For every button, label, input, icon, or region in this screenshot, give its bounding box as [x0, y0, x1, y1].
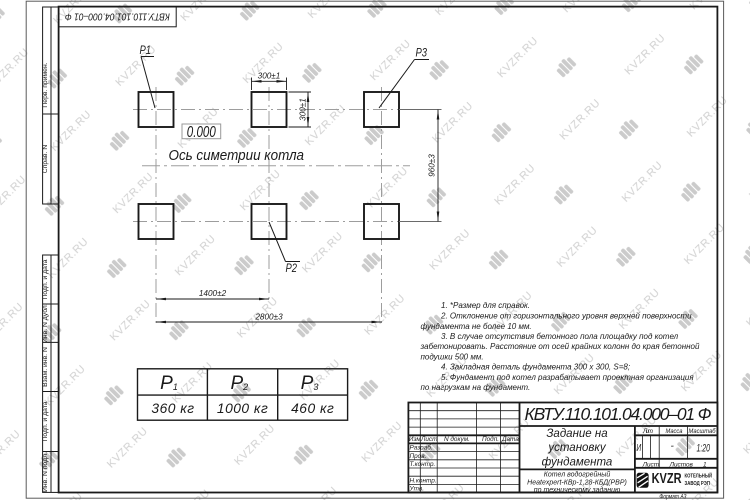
svg-text:Взам. инв. N: Взам. инв. N — [42, 347, 49, 387]
svg-text:Н.контр.: Н.контр. — [410, 477, 437, 484]
svg-text:Р3: Р3 — [416, 46, 428, 60]
svg-text:460 кг: 460 кг — [291, 401, 334, 416]
svg-text:Инв. N подл.: Инв. N подл. — [42, 452, 49, 492]
svg-text:1:20: 1:20 — [697, 442, 711, 454]
svg-text:Р1: Р1 — [140, 43, 152, 57]
svg-text:Утв.: Утв. — [409, 486, 425, 493]
svg-text:4. Закладная деталь фундамент: 4. Закладная деталь фундамента 300 x 300… — [441, 363, 630, 372]
svg-text:Подп. и дата: Подп. и дата — [42, 401, 49, 441]
svg-text:Heatexpert-КВр-1,28-КБД(РВР): Heatexpert-КВр-1,28-КБД(РВР) — [527, 480, 627, 487]
svg-text:Масса: Масса — [666, 428, 683, 435]
svg-text:Справ. N: Справ. N — [42, 145, 49, 174]
svg-text:Лист: Лист — [642, 462, 660, 469]
svg-text:Масштаб: Масштаб — [689, 427, 716, 435]
svg-text:0.000: 0.000 — [187, 124, 216, 141]
svg-text:1000 кг: 1000 кг — [217, 401, 268, 416]
svg-text:КВТУ.110.101.04.000–01 Ф: КВТУ.110.101.04.000–01 Ф — [525, 404, 712, 424]
svg-text:ЗАВОД РЭП: ЗАВОД РЭП — [685, 481, 711, 487]
svg-text:Р2: Р2 — [286, 261, 298, 275]
svg-text:2. Отклонение от горизонтальн: 2. Отклонение от горизонтального уровня … — [440, 312, 692, 321]
svg-text:установку: установку — [547, 442, 607, 454]
svg-text:300±1: 300±1 — [298, 98, 307, 121]
svg-text:KVZR: KVZR — [652, 471, 682, 487]
svg-text:подушки 500 мм.: подушки 500 мм. — [421, 352, 484, 361]
svg-text:Подп.: Подп. — [482, 435, 499, 443]
svg-text:960±3: 960±3 — [428, 154, 437, 177]
svg-text:КВТУ.110.101.04.000–01 Ф: КВТУ.110.101.04.000–01 Ф — [65, 11, 170, 23]
svg-text:по техническому заданию: по техническому заданию — [534, 486, 621, 494]
svg-text:3. В случае отсутствия бетонн: 3. В случае отсутствия бетонного пола пл… — [441, 332, 679, 341]
svg-text:N докум.: N докум. — [444, 435, 470, 443]
svg-text:Перв. примен.: Перв. примен. — [42, 62, 49, 107]
svg-text:забетонировать. Расстояние от: забетонировать. Расстояние от осей крайн… — [420, 342, 700, 351]
svg-text:Пров.: Пров. — [410, 453, 427, 460]
svg-text:Инв. N дубл.: Инв. N дубл. — [41, 303, 49, 343]
svg-text:фундамента не более 10 мм.: фундамента не более 10 мм. — [421, 322, 532, 331]
svg-text:Ось симетрии котла: Ось симетрии котла — [169, 148, 305, 164]
svg-text:Т.контр.: Т.контр. — [410, 461, 436, 468]
svg-text:Формат А3: Формат А3 — [659, 493, 686, 500]
svg-text:Разраб.: Разраб. — [410, 444, 433, 452]
svg-text:Лит.: Лит. — [642, 428, 654, 435]
svg-text:Котел водогрейный: Котел водогрейный — [544, 471, 611, 479]
svg-text:Изм: Изм — [409, 436, 421, 443]
svg-text:КОТЕЛЬНЫЙ: КОТЕЛЬНЫЙ — [685, 472, 713, 480]
svg-text:фундамента: фундамента — [542, 457, 613, 469]
svg-text:360 кг: 360 кг — [151, 401, 194, 416]
svg-text:Листов: Листов — [669, 462, 694, 469]
svg-text:5. Фундамент под котел разраб: 5. Фундамент под котел разрабатывает про… — [441, 373, 694, 382]
svg-text:И: И — [636, 442, 641, 454]
svg-text:по нагрузкам на фундамент.: по нагрузкам на фундамент. — [421, 383, 531, 392]
svg-text:Задание на: Задание на — [546, 428, 607, 440]
svg-text:1400±2: 1400±2 — [199, 289, 227, 298]
svg-text:Лист: Лист — [420, 436, 438, 443]
svg-text:1. *Размер для справок.: 1. *Размер для справок. — [441, 301, 530, 310]
svg-text:Дата: Дата — [501, 436, 519, 443]
svg-text:Подп. и дата: Подп. и дата — [42, 259, 49, 299]
svg-text:2800±3: 2800±3 — [254, 312, 283, 321]
svg-text:1: 1 — [703, 462, 707, 469]
svg-text:300±1: 300±1 — [258, 72, 281, 81]
